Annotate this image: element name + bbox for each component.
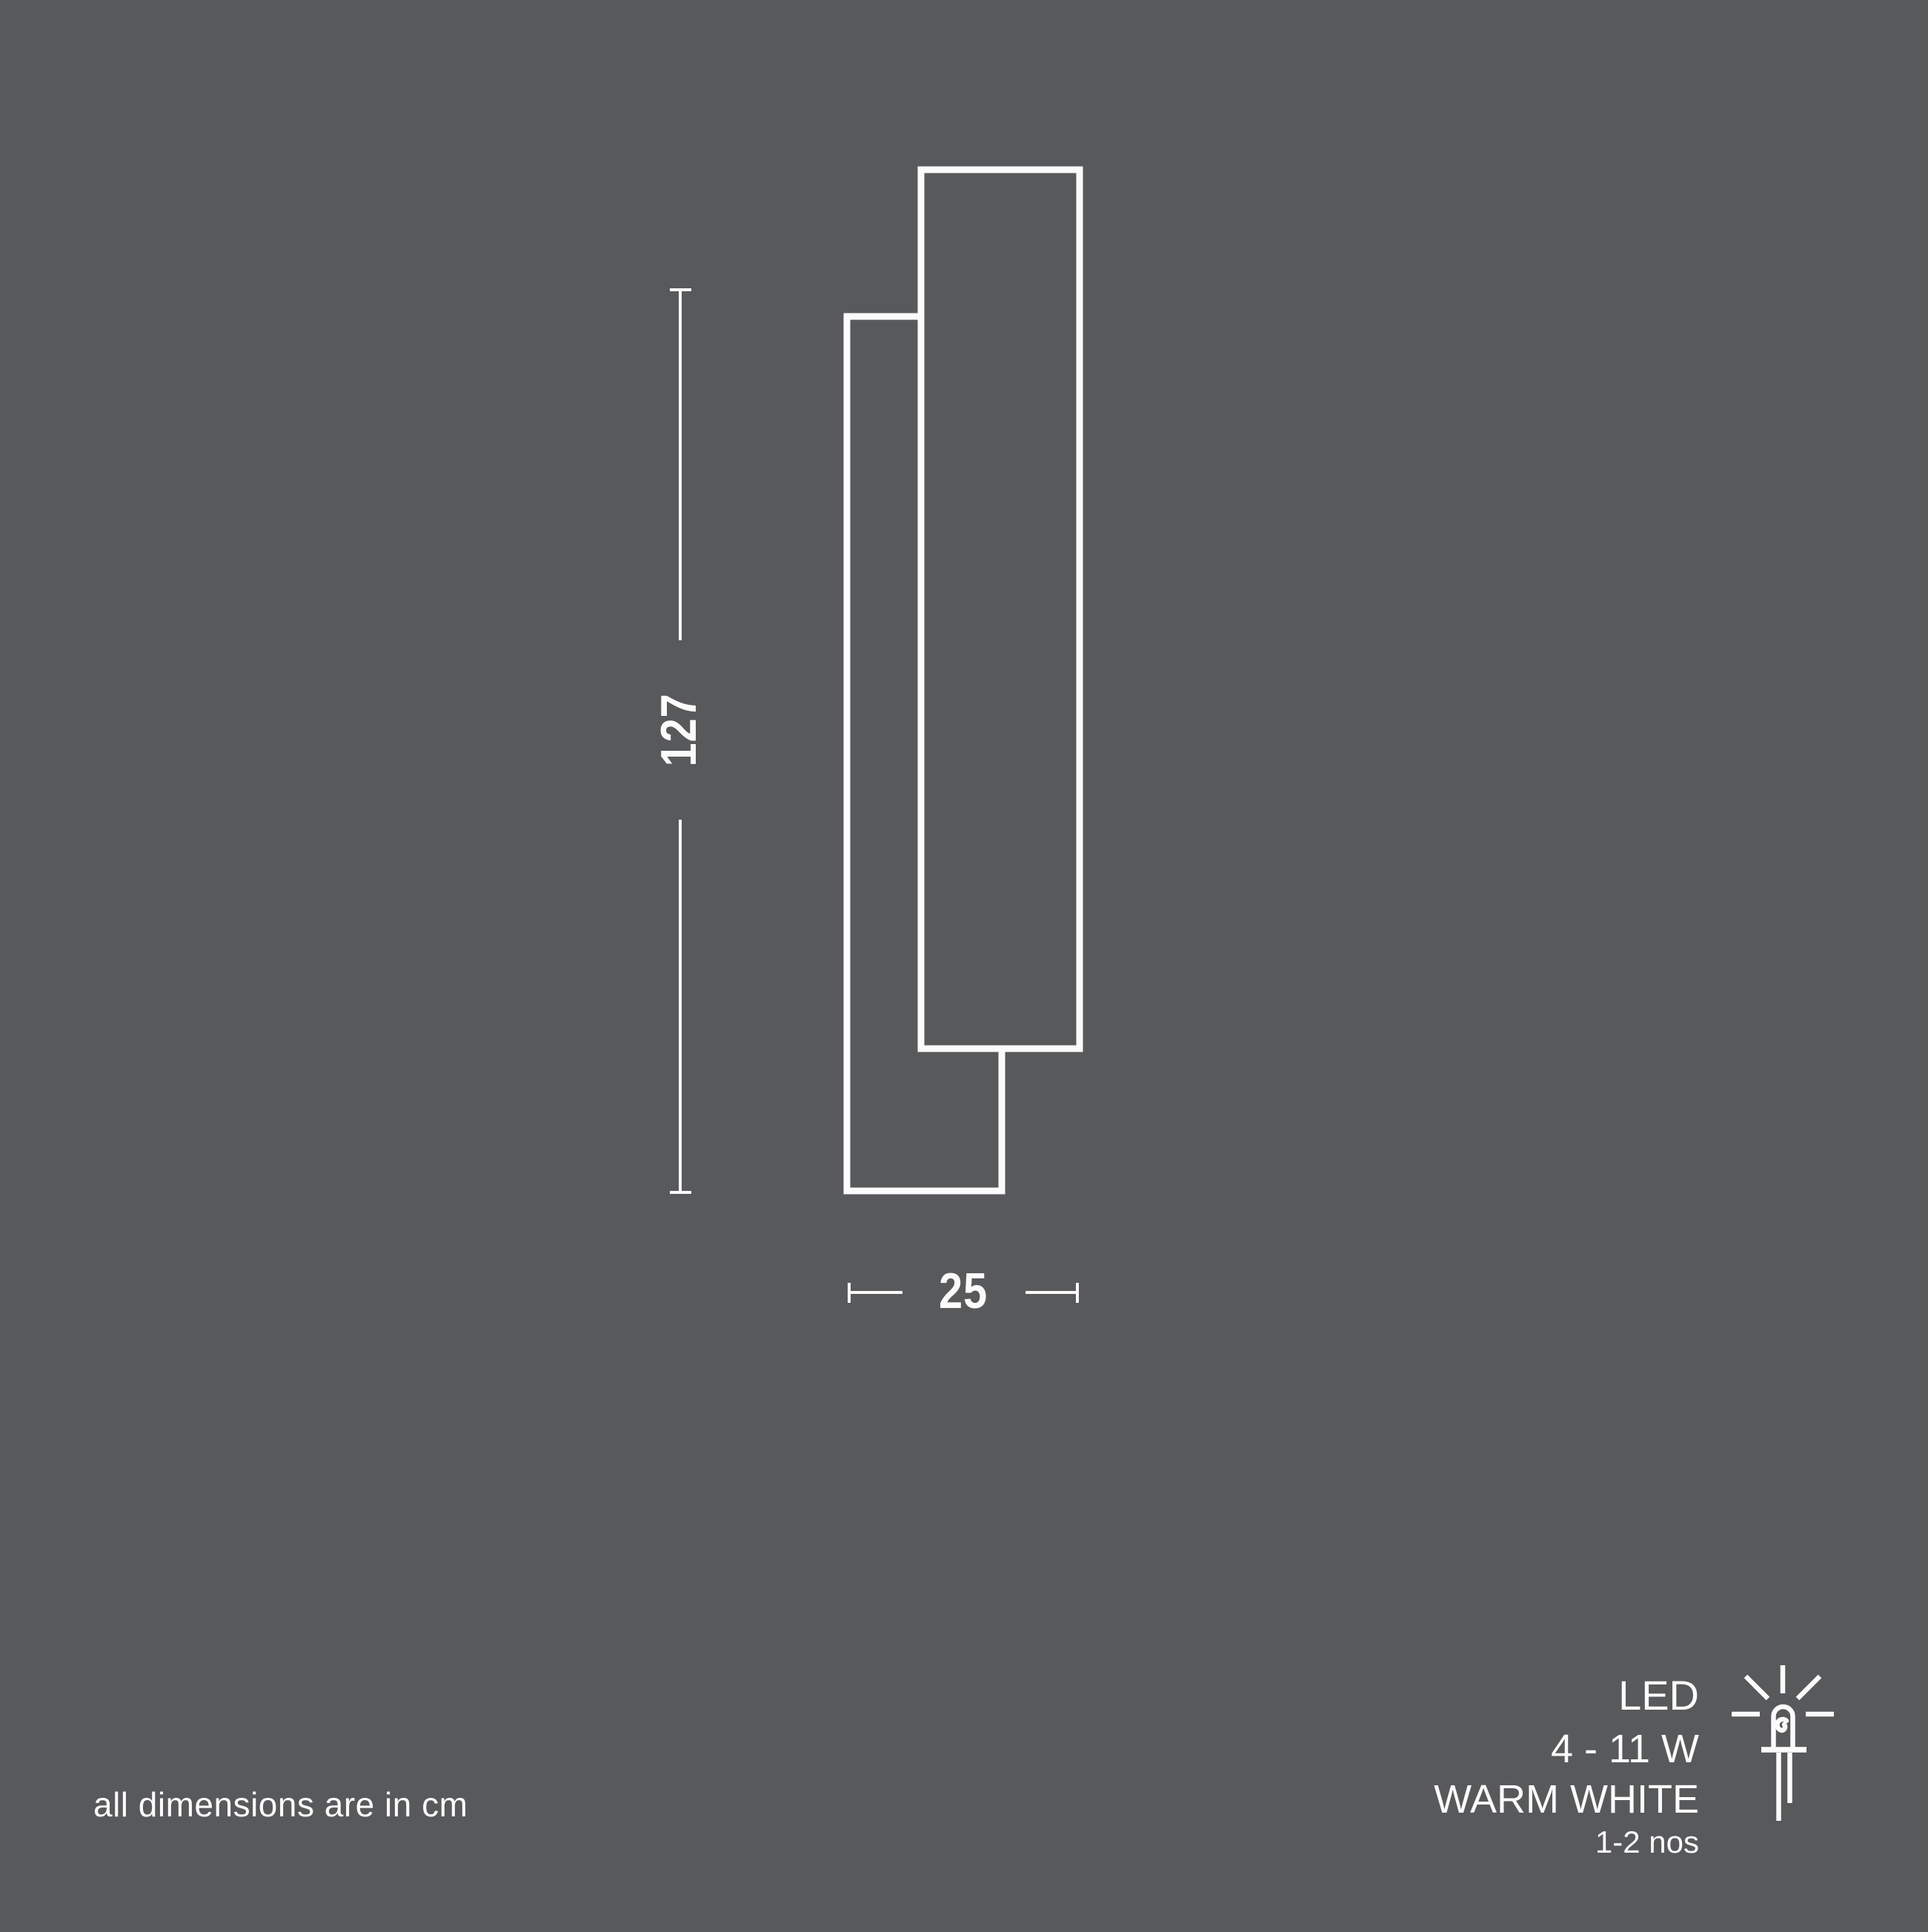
spec-sheet: 127 25 all dimensions are in cm LED 4 - …: [0, 0, 1928, 1932]
wattage-label: 4 - 11 W: [1434, 1722, 1699, 1776]
light-color-label: WARM WHITE: [1434, 1776, 1699, 1823]
lamp-type-label: LED: [1434, 1669, 1699, 1722]
led-bulb-icon: [1732, 1665, 1834, 1821]
diagram-drawing: [0, 0, 1928, 1932]
quantity-label: 1-2 nos: [1434, 1823, 1699, 1862]
lamp-spec-block: LED 4 - 11 W WARM WHITE 1-2 nos: [1434, 1669, 1699, 1862]
fixture-outline: [847, 170, 1080, 1191]
height-dimension-label: 127: [650, 694, 708, 767]
units-note: all dimensions are in cm: [93, 1785, 468, 1825]
tall-bar-outline: [921, 170, 1080, 1049]
width-dimension-label: 25: [939, 1262, 988, 1320]
